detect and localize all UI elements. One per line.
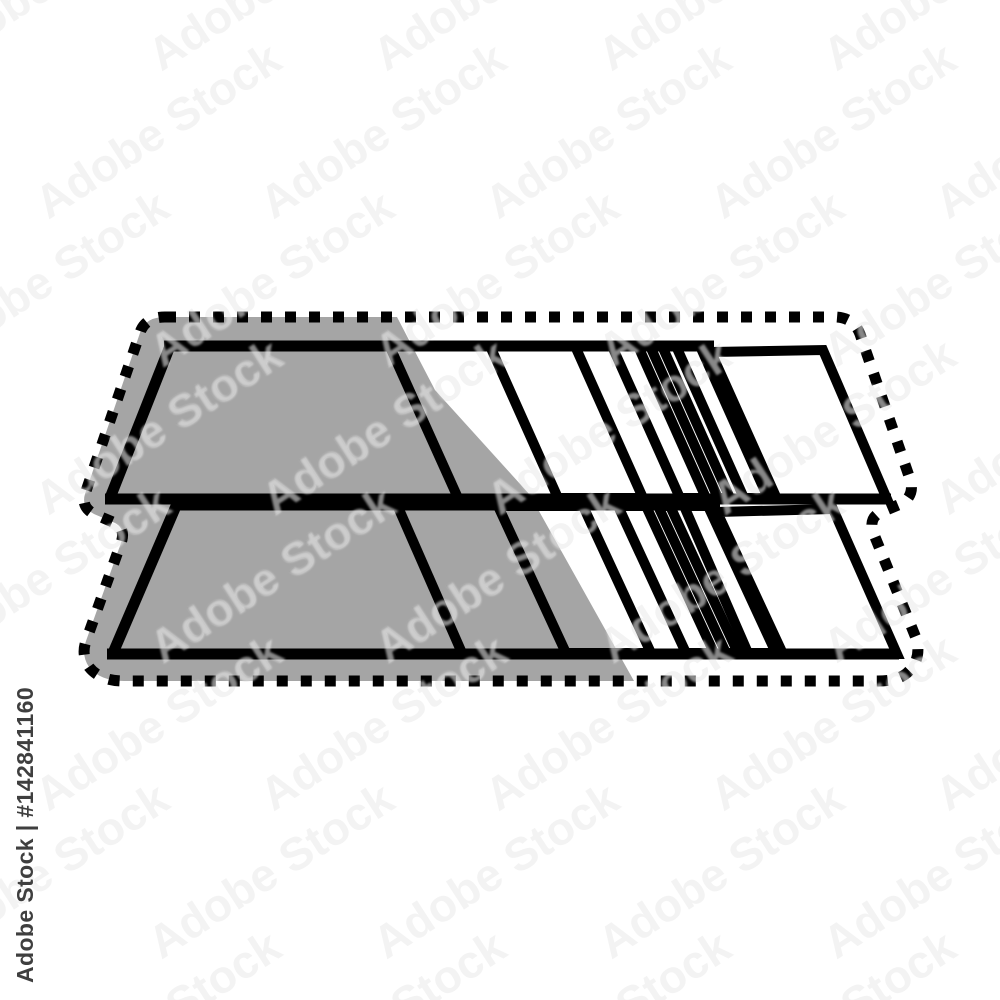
stock-image-preview: Adobe StockAdobe StockAdobe StockAdobe S…: [0, 0, 1000, 1000]
roof-sticker-icon: [0, 0, 1000, 1000]
stock-credit-text: Adobe Stock | #142841160: [12, 687, 39, 983]
